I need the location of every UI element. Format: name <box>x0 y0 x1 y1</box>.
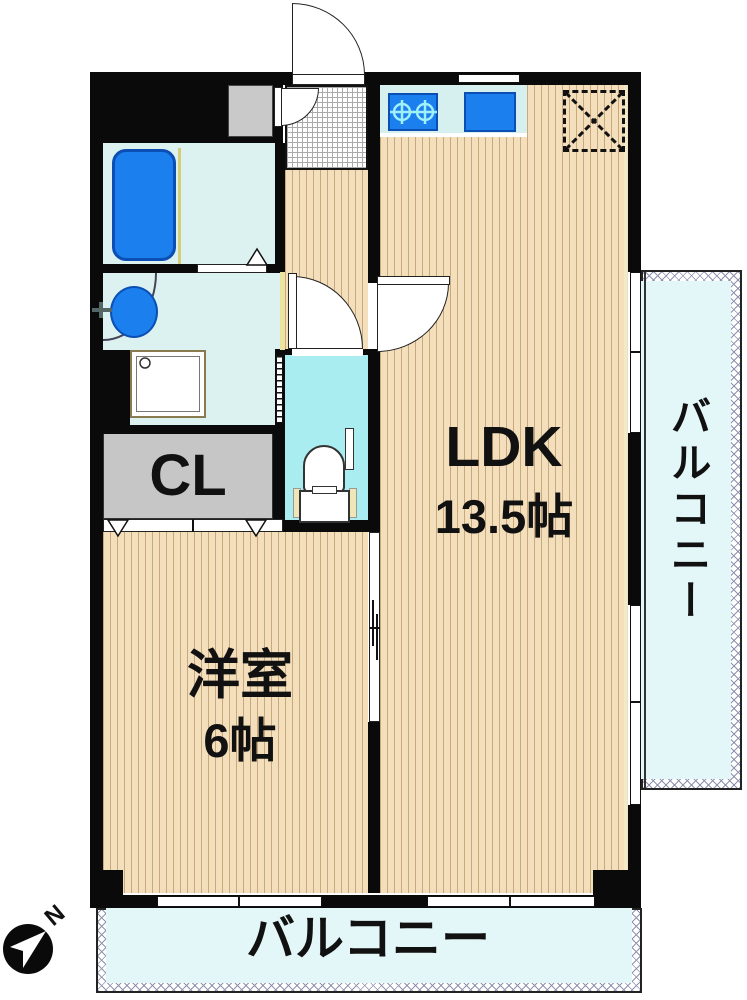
balcony-bottom-label: バルコニー <box>178 914 558 965</box>
closet-label: CL <box>103 433 273 519</box>
closet-door-triangle <box>108 520 128 536</box>
ldk-area-label: 13.5帖 <box>404 492 604 541</box>
western-room-area-label: 6帖 <box>140 716 340 765</box>
burner-icon <box>390 100 437 124</box>
bath-door-triangle <box>247 249 267 265</box>
western-room-label: 洋室 <box>140 648 340 704</box>
floor-plan: LDK 13.5帖 洋室 6帖 CL バルコニー バルコニー N <box>0 0 747 1000</box>
ldk-label: LDK <box>404 418 604 478</box>
faucet-icon <box>92 302 112 318</box>
balcony-right-label: バルコニー <box>662 335 708 685</box>
drain-icon <box>140 358 150 368</box>
closet-door-triangle <box>246 520 266 536</box>
